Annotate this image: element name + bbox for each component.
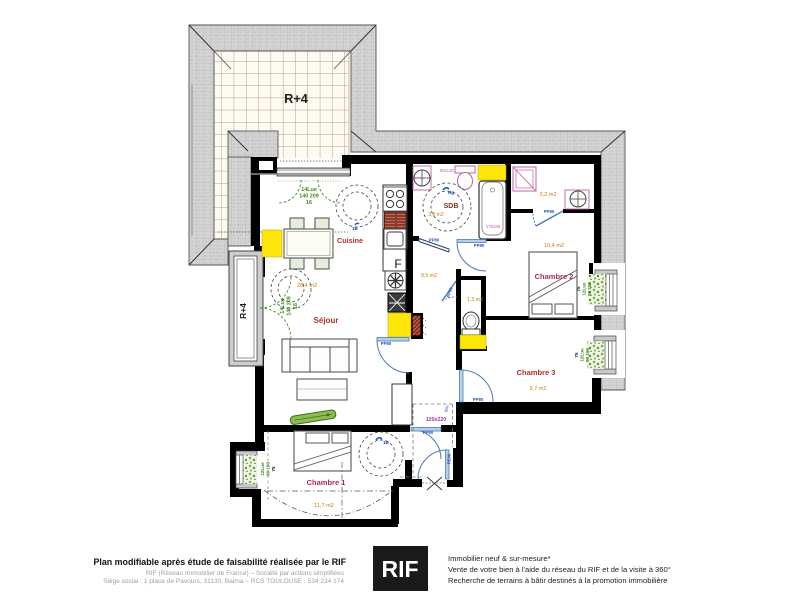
svg-text:9,7 m2: 9,7 m2 <box>529 386 546 392</box>
svg-text:RIF: RIF <box>381 556 418 582</box>
svg-text:Plan modifiable après étude de: Plan modifiable après étude de faisabili… <box>93 557 346 567</box>
svg-text:10,4 m2: 10,4 m2 <box>544 243 564 249</box>
svg-text:Hg: Hg <box>448 190 454 195</box>
svg-text:75: 75 <box>576 286 581 292</box>
svg-text:12Lue: 12Lue <box>580 348 585 362</box>
svg-text:120x220: 120x220 <box>426 417 446 423</box>
svg-text:PP80: PP80 <box>544 209 555 214</box>
svg-text:16: 16 <box>306 200 312 206</box>
svg-text:Recherche de terrains à bâtir: Recherche de terrains à bâtir destinés à… <box>448 576 667 585</box>
svg-text:140 209: 140 209 <box>287 296 293 316</box>
svg-text:12Lue: 12Lue <box>582 282 587 296</box>
svg-text:Immobilier neuf & sur-mesure*: Immobilier neuf & sur-mesure* <box>448 554 551 563</box>
svg-text:90 150: 90 150 <box>587 282 592 296</box>
svg-text:Chambre 1: Chambre 1 <box>307 478 346 487</box>
svg-text:28,4 m2: 28,4 m2 <box>297 283 317 289</box>
svg-text:Vente de votre bien à l'aide d: Vente de votre bien à l'aide du réseau d… <box>448 565 671 574</box>
svg-text:80x130: 80x130 <box>440 168 454 173</box>
svg-text:75: 75 <box>574 352 579 358</box>
svg-text:PE90: PE90 <box>447 453 452 464</box>
svg-text:RIF (Réseau Immobilier de Fran: RIF (Réseau Immobilier de France) – Soci… <box>146 570 345 577</box>
svg-text:PP80: PP80 <box>474 243 485 248</box>
svg-text:3,8 m2: 3,8 m2 <box>428 212 444 218</box>
svg-text:Séjour: Séjour <box>314 316 339 325</box>
svg-text:PP80: PP80 <box>423 430 434 435</box>
svg-text:90 150: 90 150 <box>585 348 590 362</box>
svg-text:R+4: R+4 <box>238 303 248 319</box>
svg-text:F: F <box>394 257 401 271</box>
svg-text:Siège social : 1 place de Pavo: Siège social : 1 place de Pavours, 31130… <box>103 578 344 585</box>
svg-text:R+4: R+4 <box>284 91 309 106</box>
svg-text:11,7 m2: 11,7 m2 <box>314 503 334 509</box>
svg-text:75: 75 <box>271 466 276 472</box>
svg-text:140 209: 140 209 <box>299 194 319 200</box>
svg-text:PP80: PP80 <box>381 341 392 346</box>
svg-text:1B: 1B <box>352 226 359 231</box>
svg-text:3,2 m2: 3,2 m2 <box>539 192 556 198</box>
svg-text:1,3 m2: 1,3 m2 <box>467 297 483 303</box>
svg-text:12Lue: 12Lue <box>260 462 265 476</box>
svg-text:Cuisine: Cuisine <box>337 236 363 245</box>
svg-text:14Lue: 14Lue <box>280 298 286 314</box>
svg-text:SDB: SDB <box>444 203 459 210</box>
svg-text:PP80: PP80 <box>429 238 440 243</box>
svg-text:PP80: PP80 <box>473 397 484 402</box>
svg-text:1B: 1B <box>383 440 390 445</box>
svg-text:Chambre 3: Chambre 3 <box>517 368 556 377</box>
svg-text:8,5 m2: 8,5 m2 <box>421 273 437 279</box>
svg-text:170x80: 170x80 <box>486 224 501 229</box>
svg-text:Chambre 2: Chambre 2 <box>535 272 574 281</box>
svg-text:14Lue: 14Lue <box>301 187 317 193</box>
svg-text:90 150: 90 150 <box>266 462 271 476</box>
